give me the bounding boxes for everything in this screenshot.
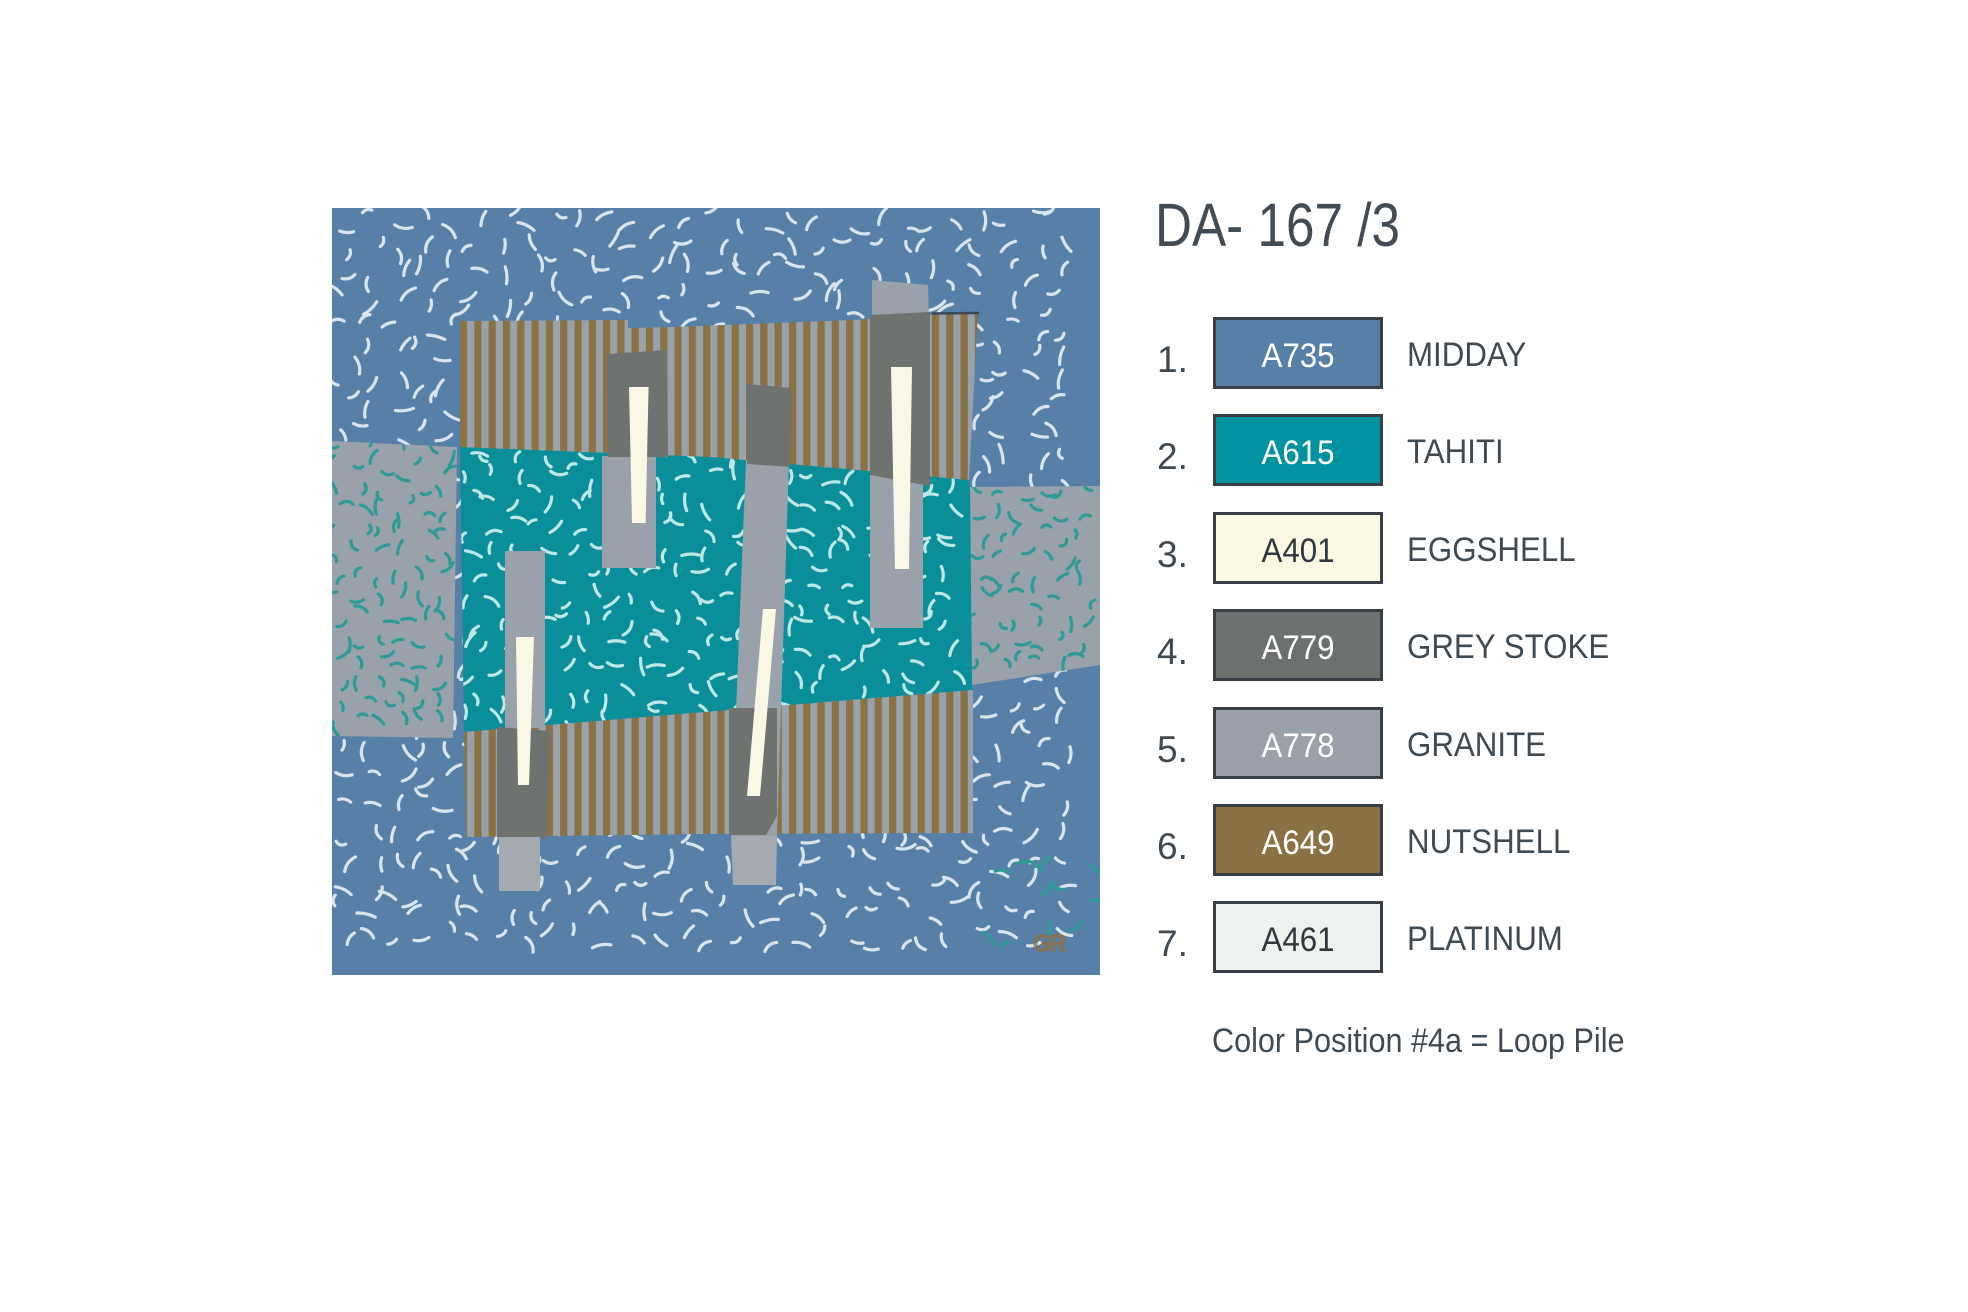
- svg-text:GR: GR: [1033, 930, 1066, 956]
